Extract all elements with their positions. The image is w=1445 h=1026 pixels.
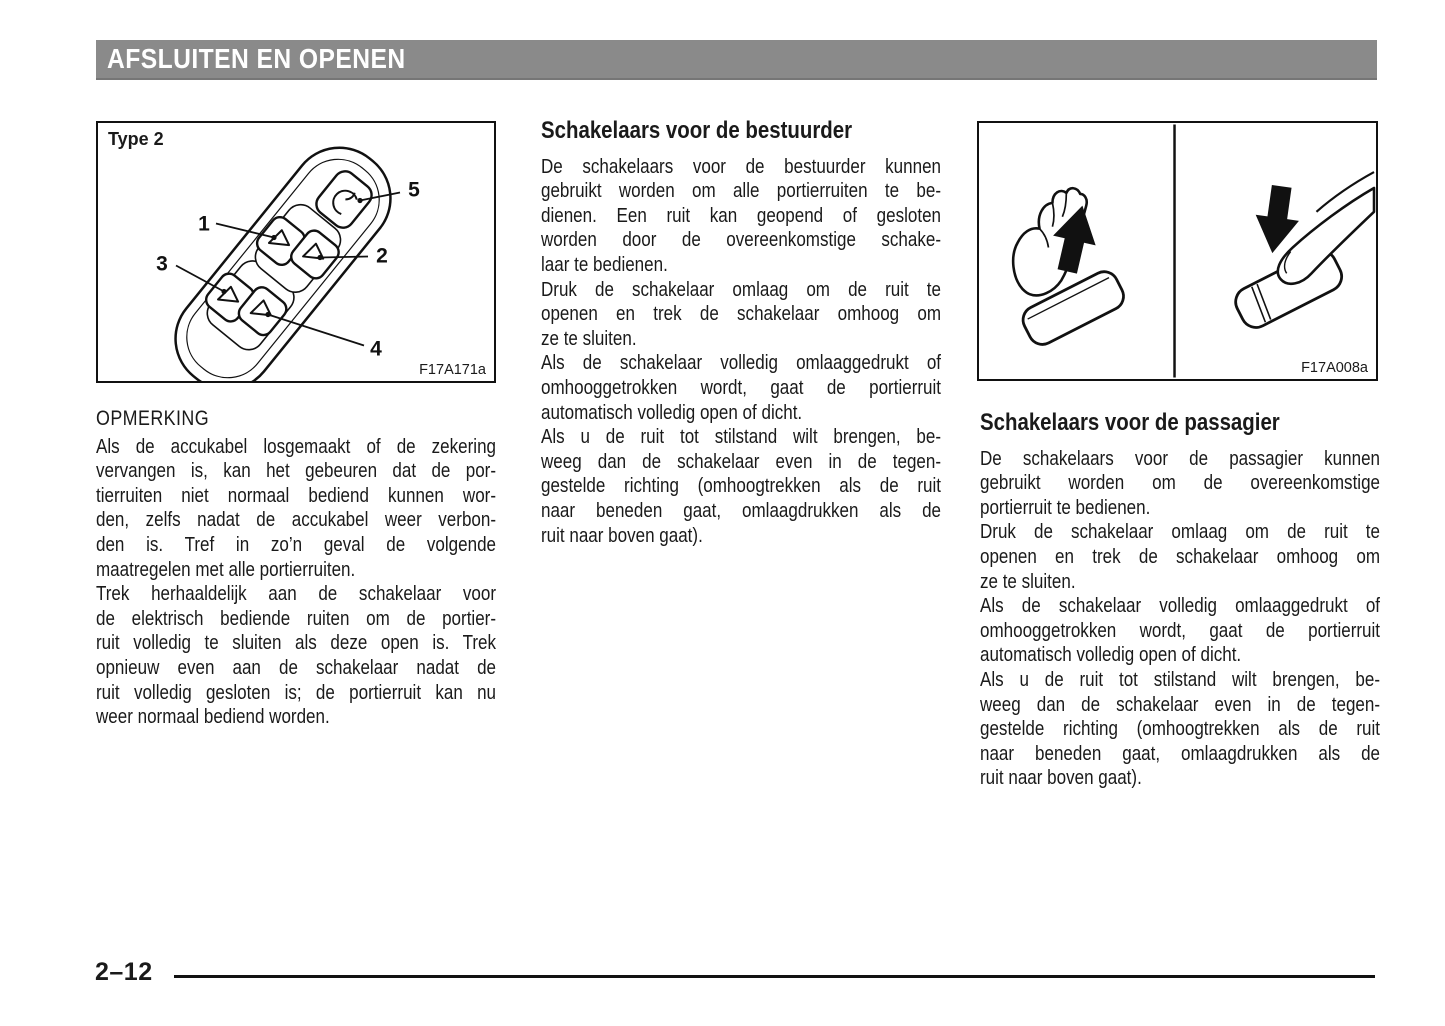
text-line: Als de schakelaar volledig omlaaggedrukt… — [541, 351, 941, 376]
paragraph: Als de schakelaar volledig omlaaggedrukt… — [980, 594, 1380, 668]
text-line: maatregelen met alle portierruiten. — [96, 558, 496, 583]
text-line: gebruikt worden om alle portierruiten te… — [541, 179, 941, 204]
page-number: 2–12 — [95, 958, 153, 987]
text-line: Als de schakelaar volledig omlaaggedrukt… — [980, 594, 1380, 619]
text-line: ruit naar boven gaat). — [541, 524, 941, 549]
text-line: ze te sluiten. — [980, 570, 1380, 595]
note-section: OPMERKING Als de accukabel losgemaakt of… — [96, 407, 496, 730]
paragraph: Als de accukabel losgemaakt of de zekeri… — [96, 435, 496, 583]
text-line: omhooggetrokken wordt, gaat de portierru… — [541, 376, 941, 401]
driver-section-heading: Schakelaars voor de bestuurder — [541, 119, 941, 144]
text-line: opnieuw even aan de schakelaar nadat de — [96, 656, 496, 681]
chapter-header-bar: AFSLUITEN EN OPENEN — [96, 40, 1377, 80]
text-line: weeg dan de schakelaar even in de tegen- — [980, 693, 1380, 718]
passenger-section: Schakelaars voor de passagier De schakel… — [980, 411, 1380, 791]
driver-section-body: De schakelaars voor de bestuurder kunnen… — [541, 155, 941, 549]
text-line: automatisch volledig open of dicht. — [541, 401, 941, 426]
text-line: dienen. Een ruit kan geopend of gesloten — [541, 204, 941, 229]
paragraph: Trek herhaaldelijk aan de schakelaar voo… — [96, 582, 496, 730]
text-line: tierruiten niet normaal bediend kunnen w… — [96, 484, 496, 509]
callout-2: 2 — [376, 245, 388, 268]
note-heading: OPMERKING — [96, 407, 496, 432]
paragraph: De schakelaars voor de bestuurder kunnen… — [541, 155, 941, 278]
figure-hand-operation: F17A008a — [977, 121, 1378, 381]
paragraph: Druk de schakelaar omlaag om de ruit teo… — [980, 520, 1380, 594]
text-line: De schakelaars voor de bestuurder kunnen — [541, 155, 941, 180]
callout-1: 1 — [198, 213, 210, 236]
driver-section: Schakelaars voor de bestuurder De schake… — [541, 119, 941, 548]
text-line: gebruikt worden om de overeenkomstige — [980, 471, 1380, 496]
text-line: de elektrisch bediende ruiten om de port… — [96, 607, 496, 632]
text-line: openen en trek de schakelaar omhoog om — [980, 545, 1380, 570]
manual-page: { "header": { "title": "AFSLUITEN EN OPE… — [0, 0, 1445, 1026]
callout-5: 5 — [408, 179, 420, 202]
text-line: worden door de overeenkomstige schake- — [541, 228, 941, 253]
text-line: gestelde richting (omhoogtrekken als de … — [980, 717, 1380, 742]
text-line: weer normaal bediend worden. — [96, 705, 496, 730]
passenger-section-heading: Schakelaars voor de passagier — [980, 411, 1380, 436]
text-line: ruit volledig gesloten is; de portierrui… — [96, 681, 496, 706]
text-line: den, zelfs nadat de accukabel weer verbo… — [96, 508, 496, 533]
text-line: De schakelaars voor de passagier kunnen — [980, 447, 1380, 472]
paragraph: Druk de schakelaar omlaag om de ruit teo… — [541, 278, 941, 352]
text-line: den is. Tref in zo’n geval de volgende — [96, 533, 496, 558]
paragraph: Als u de ruit tot stilstand wilt brengen… — [980, 668, 1380, 791]
text-line: Druk de schakelaar omlaag om de ruit te — [541, 278, 941, 303]
passenger-section-body: De schakelaars voor de passagier kunneng… — [980, 447, 1380, 791]
text-line: Trek herhaaldelijk aan de schakelaar voo… — [96, 582, 496, 607]
text-line: Als u de ruit tot stilstand wilt brengen… — [541, 425, 941, 450]
text-line: omhooggetrokken wordt, gaat de portierru… — [980, 619, 1380, 644]
text-line: vervangen is, kan het gebeuren dat de po… — [96, 459, 496, 484]
figure-switch-panel: 1 2 3 4 5 Type 2 F17A171a — [96, 121, 496, 383]
chapter-title: AFSLUITEN EN OPENEN — [107, 43, 406, 75]
text-line: Als de accukabel losgemaakt of de zekeri… — [96, 435, 496, 460]
figure-code: F17A008a — [1301, 360, 1368, 376]
text-line: laar te bedienen. — [541, 253, 941, 278]
text-line: weeg dan de schakelaar even in de tegen- — [541, 450, 941, 475]
paragraph: De schakelaars voor de passagier kunneng… — [980, 447, 1380, 521]
text-line: Druk de schakelaar omlaag om de ruit te — [980, 520, 1380, 545]
text-line: naar beneden gaat, omlaagdrukken als de — [980, 742, 1380, 767]
figure-code: F17A171a — [419, 362, 486, 378]
text-line: ze te sluiten. — [541, 327, 941, 352]
callout-4: 4 — [370, 338, 382, 361]
figure-type-label: Type 2 — [108, 129, 164, 150]
note-body: Als de accukabel losgemaakt of de zekeri… — [96, 435, 496, 730]
text-line: gestelde richting (omhoogtrekken als de … — [541, 474, 941, 499]
text-line: automatisch volledig open of dicht. — [980, 643, 1380, 668]
text-line: naar beneden gaat, omlaagdrukken als de — [541, 499, 941, 524]
text-line: ruit volledig te sluiten als deze open i… — [96, 631, 496, 656]
footer-rule — [174, 975, 1375, 978]
paragraph: Als u de ruit tot stilstand wilt brengen… — [541, 425, 941, 548]
callout-3: 3 — [156, 253, 168, 276]
press-down-illustration — [1231, 172, 1374, 332]
text-line: portierruit te bedienen. — [980, 496, 1380, 521]
text-line: Als u de ruit tot stilstand wilt brengen… — [980, 668, 1380, 693]
text-line: ruit naar boven gaat). — [980, 766, 1380, 791]
paragraph: Als de schakelaar volledig omlaaggedrukt… — [541, 351, 941, 425]
switch-panel-illustration: 1 2 3 4 5 — [98, 123, 494, 381]
text-line: openen en trek de schakelaar omhoog om — [541, 302, 941, 327]
hand-operation-illustration — [979, 123, 1376, 379]
pull-up-illustration — [1013, 188, 1128, 349]
